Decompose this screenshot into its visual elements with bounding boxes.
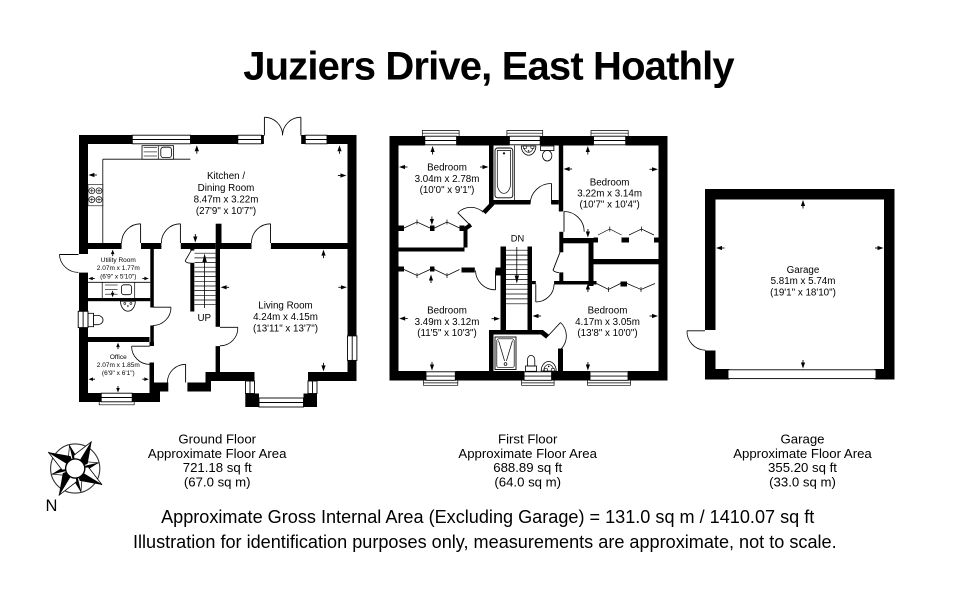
svg-text:First Floor: First Floor <box>498 432 558 447</box>
svg-text:Approximate Floor Area: Approximate Floor Area <box>148 446 287 461</box>
svg-text:3.04m x 2.78m: 3.04m x 2.78m <box>415 174 480 185</box>
svg-text:721.18 sq ft: 721.18 sq ft <box>183 460 252 475</box>
svg-text:N: N <box>46 497 58 515</box>
svg-text:688.89 sq ft: 688.89 sq ft <box>493 460 562 475</box>
svg-text:(6'9" x 6'1"): (6'9" x 6'1") <box>102 370 135 377</box>
svg-text:Utility Room: Utility Room <box>101 257 136 264</box>
svg-text:(64.0 sq m): (64.0 sq m) <box>494 474 561 489</box>
svg-text:(67.0 sq m): (67.0 sq m) <box>184 474 251 489</box>
svg-text:Ground Floor: Ground Floor <box>178 432 256 447</box>
svg-text:3.49m x 3.12m: 3.49m x 3.12m <box>415 317 480 328</box>
svg-text:(27'9" x 10'7"): (27'9" x 10'7") <box>196 206 256 217</box>
svg-text:Illustration for identificatio: Illustration for identification purposes… <box>133 532 837 552</box>
svg-text:Living Room: Living Room <box>258 300 312 311</box>
svg-text:(13'11" x 13'7"): (13'11" x 13'7") <box>253 323 318 334</box>
svg-text:Bedroom: Bedroom <box>427 162 467 173</box>
svg-text:Office: Office <box>110 354 127 361</box>
svg-text:4.24m x 4.15m: 4.24m x 4.15m <box>253 312 318 323</box>
svg-text:(33.0 sq m): (33.0 sq m) <box>769 474 836 489</box>
svg-text:(19'1" x 18'10"): (19'1" x 18'10") <box>770 288 836 299</box>
svg-text:Juziers Drive, East Hoathly: Juziers Drive, East Hoathly <box>243 44 735 88</box>
svg-text:Dining Room: Dining Room <box>198 183 255 194</box>
svg-text:Approximate Floor Area: Approximate Floor Area <box>458 446 597 461</box>
svg-text:Bedroom: Bedroom <box>588 306 628 317</box>
svg-text:Garage: Garage <box>781 432 825 447</box>
svg-text:(6'9" x 5'10"): (6'9" x 5'10") <box>100 274 136 281</box>
svg-text:8.47m x 3.22m: 8.47m x 3.22m <box>194 194 259 205</box>
svg-text:Kitchen /: Kitchen / <box>207 171 245 182</box>
svg-text:Bedroom: Bedroom <box>590 177 630 188</box>
svg-text:2.07m x 1.77m: 2.07m x 1.77m <box>97 265 140 272</box>
svg-text:355.20 sq ft: 355.20 sq ft <box>768 460 837 475</box>
svg-text:(10'7" x 10'4"): (10'7" x 10'4") <box>579 200 639 211</box>
svg-text:3.22m x 3.14m: 3.22m x 3.14m <box>577 188 642 199</box>
svg-text:4.17m x 3.05m: 4.17m x 3.05m <box>575 317 640 328</box>
svg-text:2.07m x 1.85m: 2.07m x 1.85m <box>97 362 140 369</box>
svg-text:(11'5" x 10'3"): (11'5" x 10'3") <box>417 328 477 339</box>
svg-text:Garage: Garage <box>787 265 820 276</box>
svg-text:Approximate Gross Internal Are: Approximate Gross Internal Area (Excludi… <box>161 507 814 527</box>
svg-text:DN: DN <box>511 233 524 243</box>
svg-text:(10'0" x 9'1"): (10'0" x 9'1") <box>420 185 475 196</box>
svg-text:Bedroom: Bedroom <box>427 306 467 317</box>
svg-text:(13'8" x 10'0"): (13'8" x 10'0") <box>577 328 637 339</box>
svg-text:5.81m x 5.74m: 5.81m x 5.74m <box>771 276 836 287</box>
svg-text:Approximate Floor Area: Approximate Floor Area <box>733 446 872 461</box>
svg-text:UP: UP <box>197 313 211 324</box>
